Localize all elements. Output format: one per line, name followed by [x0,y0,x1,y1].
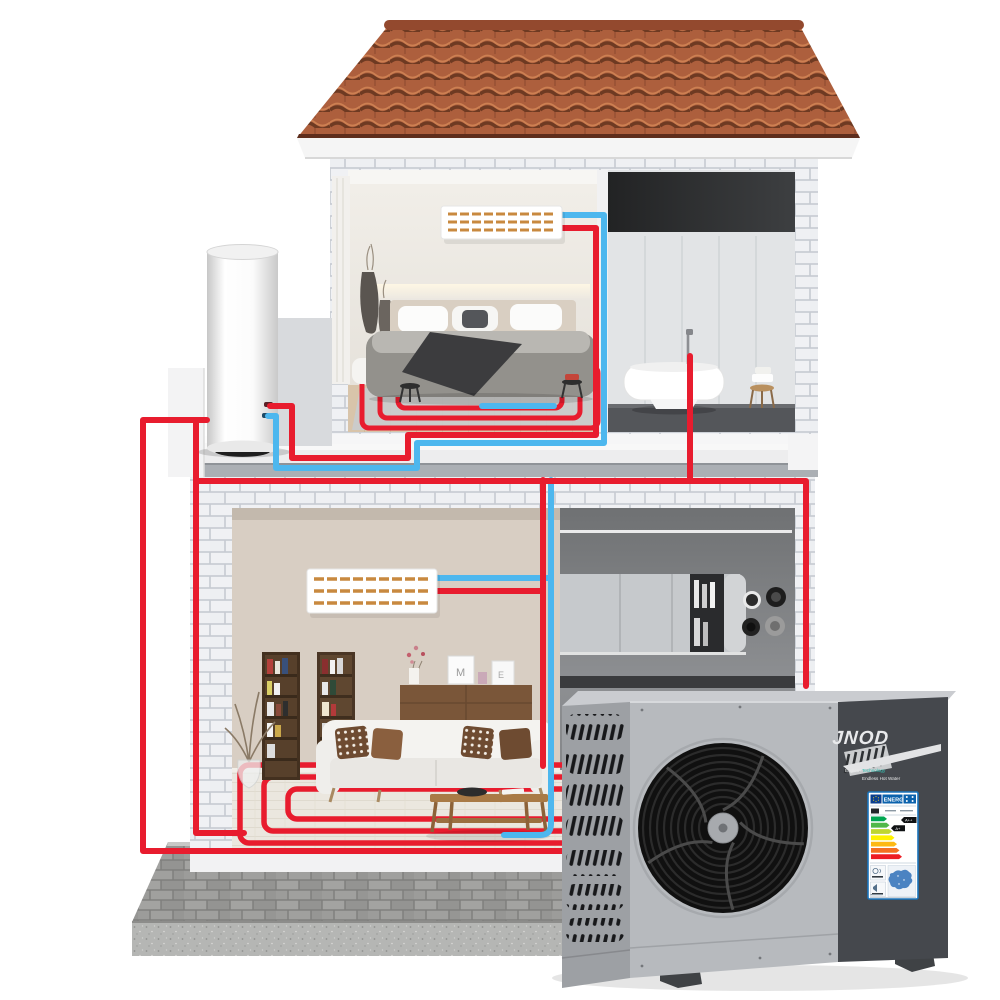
scene-illustration: M E [0,0,1000,1000]
fan-coil-unit-upper [441,206,565,244]
bathroom [608,170,795,432]
eu-flag-icon [871,795,882,804]
snowflake-icons [904,795,917,804]
cove-light [375,284,590,300]
svg-text:A+: A+ [895,826,901,831]
water-tank-area [168,245,332,478]
unit-side-vents [562,702,630,988]
product-scene: M E [0,0,1000,1000]
svg-text:A++: A++ [905,818,913,823]
rating-tag-top: A++ [901,817,917,823]
frame-letter-m: M [456,667,465,679]
energy-label-header: ENERG [884,798,904,804]
curtain [332,176,350,384]
under-cabinet-led [560,652,746,655]
tagline-word-technology: Technology [862,768,886,773]
roof-ridge [384,20,804,30]
bathroom-dark-panel [608,172,795,232]
hot-water-tank [207,245,278,457]
tagline-word-endless: Endless [845,768,862,773]
tagline-line-2: Endless Hot Water [862,776,901,781]
fan-coil-unit-lower [307,569,440,618]
bed [366,300,596,405]
frame-letter-e: E [498,670,504,680]
energy-label: ENERG A++ A+ [868,792,918,899]
rating-tag-mid: A+ [891,825,905,831]
roof [297,20,860,158]
vent-rows [566,714,624,942]
heat-pump-unit: JNOD Endless Technology Endless Hot Wate… [552,691,968,991]
bookshelf-left [262,652,300,780]
fan [634,739,812,917]
roof-fascia [297,138,860,158]
kitchen-ceiling-led [560,530,792,533]
